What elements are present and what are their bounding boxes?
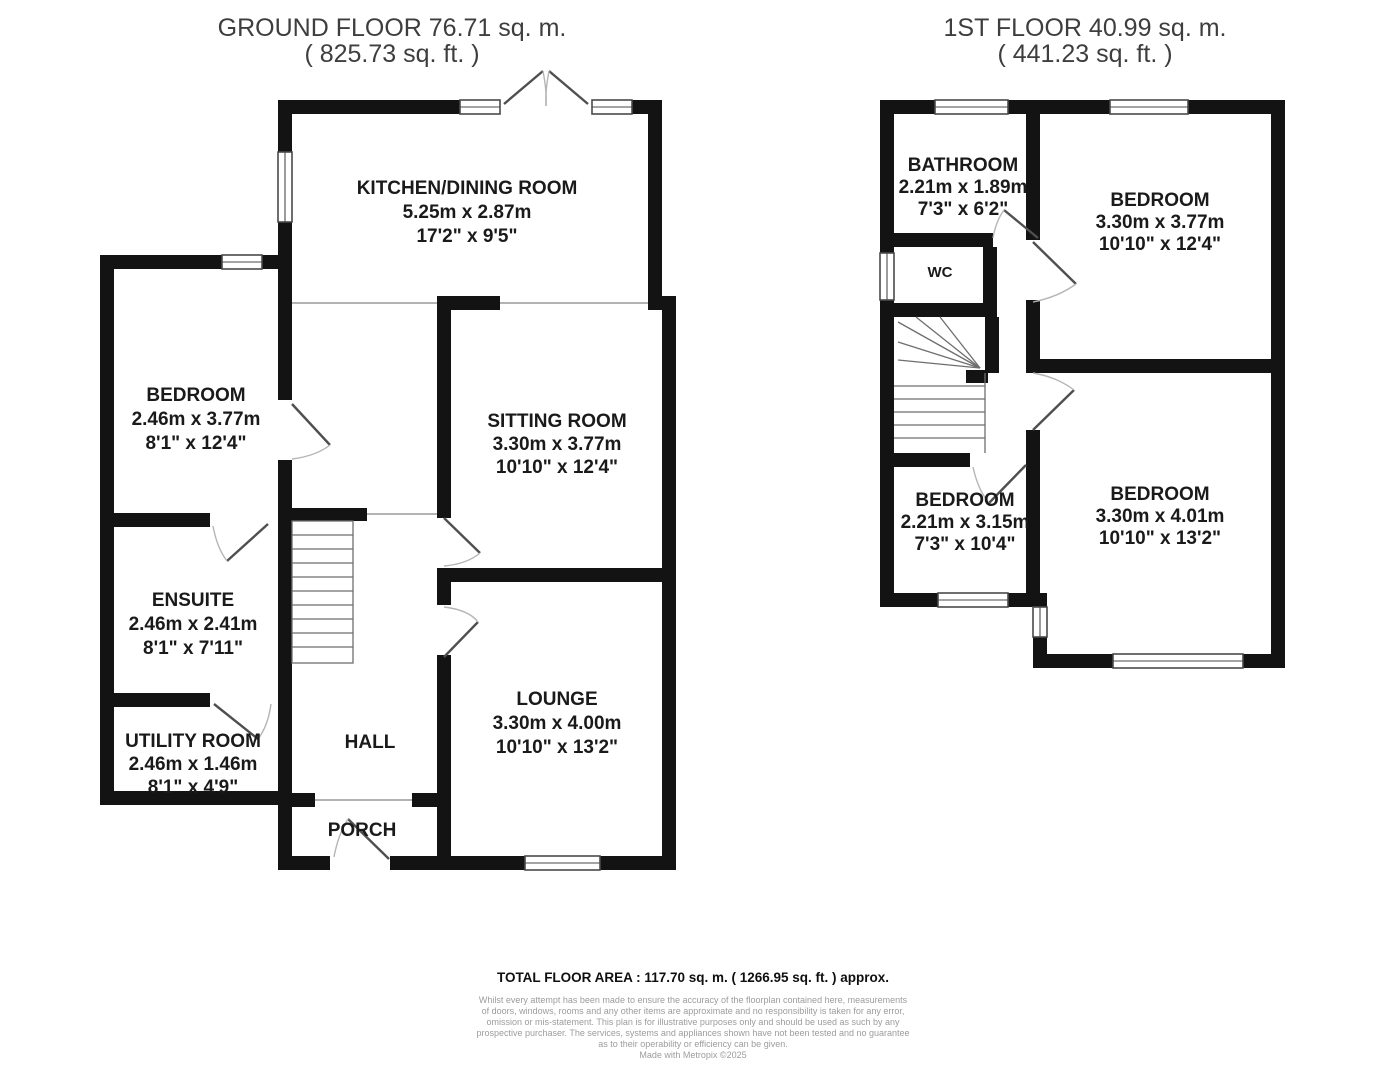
- disclaimer-line: prospective purchaser. The services, sys…: [476, 1028, 909, 1038]
- bedroom-gf-imperial: 8'1" x 12'4": [145, 433, 246, 454]
- room-label-bedroom-left: BEDROOM 2.21m x 3.15m 7'3" x 10'4": [901, 490, 1030, 555]
- ground-floor-subtitle: ( 825.73 sq. ft. ): [304, 40, 479, 68]
- room-label-utility: UTILITY ROOM 2.46m x 1.46m 8'1" x 4'9": [125, 731, 261, 798]
- disclaimer-line: omission or mis-statement. This plan is …: [486, 1017, 900, 1027]
- floorplan-page: GROUND FLOOR 76.71 sq. m. ( 825.73 sq. f…: [0, 0, 1385, 1080]
- sitting-metric: 3.30m x 3.77m: [493, 434, 622, 455]
- room-label-ensuite: ENSUITE 2.46m x 2.41m 8'1" x 7'11": [129, 590, 258, 659]
- ensuite-name: ENSUITE: [152, 590, 234, 611]
- credit-line: Made with Metropix ©2025: [639, 1050, 746, 1060]
- bedroom-rb-imperial: 10'10" x 13'2": [1099, 528, 1221, 549]
- bedroom-rb-name: BEDROOM: [1110, 484, 1209, 505]
- room-label-sitting: SITTING ROOM 3.30m x 3.77m 10'10" x 12'4…: [487, 411, 626, 478]
- kitchen-metric: 5.25m x 2.87m: [403, 202, 532, 223]
- kitchen-name: KITCHEN/DINING ROOM: [357, 178, 578, 199]
- bedroom-rt-imperial: 10'10" x 12'4": [1099, 234, 1221, 255]
- bedroom-gf-name: BEDROOM: [146, 385, 245, 406]
- first-floor-title: 1ST FLOOR 40.99 sq. m.: [944, 14, 1227, 42]
- bathroom-imperial: 7'3" x 6'2": [918, 199, 1008, 220]
- sitting-imperial: 10'10" x 12'4": [496, 457, 618, 478]
- bedroom-l-name: BEDROOM: [915, 490, 1014, 511]
- ground-floor-title: GROUND FLOOR 76.71 sq. m.: [218, 14, 567, 42]
- ensuite-imperial: 8'1" x 7'11": [143, 638, 243, 659]
- total-floor-area: TOTAL FLOOR AREA : 117.70 sq. m. ( 1266.…: [497, 970, 889, 985]
- lounge-name: LOUNGE: [516, 689, 597, 710]
- utility-imperial: 8'1" x 4'9": [148, 777, 238, 798]
- floorplan-drawing: GROUND FLOOR 76.71 sq. m. ( 825.73 sq. f…: [0, 0, 1385, 1080]
- ground-floor-stairs: [292, 521, 353, 663]
- ensuite-metric: 2.46m x 2.41m: [129, 614, 258, 635]
- first-floor-plan: 1ST FLOOR 40.99 sq. m. ( 441.23 sq. ft. …: [880, 14, 1285, 668]
- ground-floor-plan: GROUND FLOOR 76.71 sq. m. ( 825.73 sq. f…: [100, 14, 676, 870]
- first-floor-stairs: [894, 317, 985, 453]
- lounge-metric: 3.30m x 4.00m: [493, 713, 622, 734]
- disclaimer-line: of doors, windows, rooms and any other i…: [482, 1006, 905, 1016]
- bedroom-gf-metric: 2.46m x 3.77m: [132, 409, 261, 430]
- bedroom-l-imperial: 7'3" x 10'4": [914, 534, 1015, 555]
- first-floor-subtitle: ( 441.23 sq. ft. ): [997, 40, 1172, 68]
- lounge-imperial: 10'10" x 13'2": [496, 737, 618, 758]
- utility-name: UTILITY ROOM: [125, 731, 261, 752]
- hall-label: HALL: [345, 732, 396, 753]
- room-label-bedroom-gf: BEDROOM 2.46m x 3.77m 8'1" x 12'4": [132, 385, 261, 454]
- room-label-lounge: LOUNGE 3.30m x 4.00m 10'10" x 13'2": [493, 689, 622, 758]
- bedroom-l-metric: 2.21m x 3.15m: [901, 512, 1030, 533]
- bedroom-rt-name: BEDROOM: [1110, 190, 1209, 211]
- utility-metric: 2.46m x 1.46m: [129, 754, 258, 775]
- room-label-kitchen: KITCHEN/DINING ROOM 5.25m x 2.87m 17'2" …: [357, 178, 578, 247]
- room-label-bedroom-right-top: BEDROOM 3.30m x 3.77m 10'10" x 12'4": [1096, 190, 1225, 255]
- footer: TOTAL FLOOR AREA : 117.70 sq. m. ( 1266.…: [476, 970, 909, 1060]
- bathroom-name: BATHROOM: [908, 155, 1018, 176]
- porch-label: PORCH: [328, 820, 397, 841]
- bedroom-rb-metric: 3.30m x 4.01m: [1096, 506, 1225, 527]
- bathroom-metric: 2.21m x 1.89m: [899, 177, 1028, 198]
- sitting-name: SITTING ROOM: [487, 411, 626, 432]
- disclaimer-line: as to their operability or efficiency ca…: [598, 1039, 787, 1049]
- disclaimer-line: Whilst every attempt has been made to en…: [479, 995, 908, 1005]
- room-label-bedroom-right-bottom: BEDROOM 3.30m x 4.01m 10'10" x 13'2": [1096, 484, 1225, 549]
- wc-label: WC: [928, 264, 953, 281]
- kitchen-imperial: 17'2" x 9'5": [416, 226, 517, 247]
- bedroom-rt-metric: 3.30m x 3.77m: [1096, 212, 1225, 233]
- room-label-bathroom: BATHROOM 2.21m x 1.89m 7'3" x 6'2": [899, 155, 1028, 220]
